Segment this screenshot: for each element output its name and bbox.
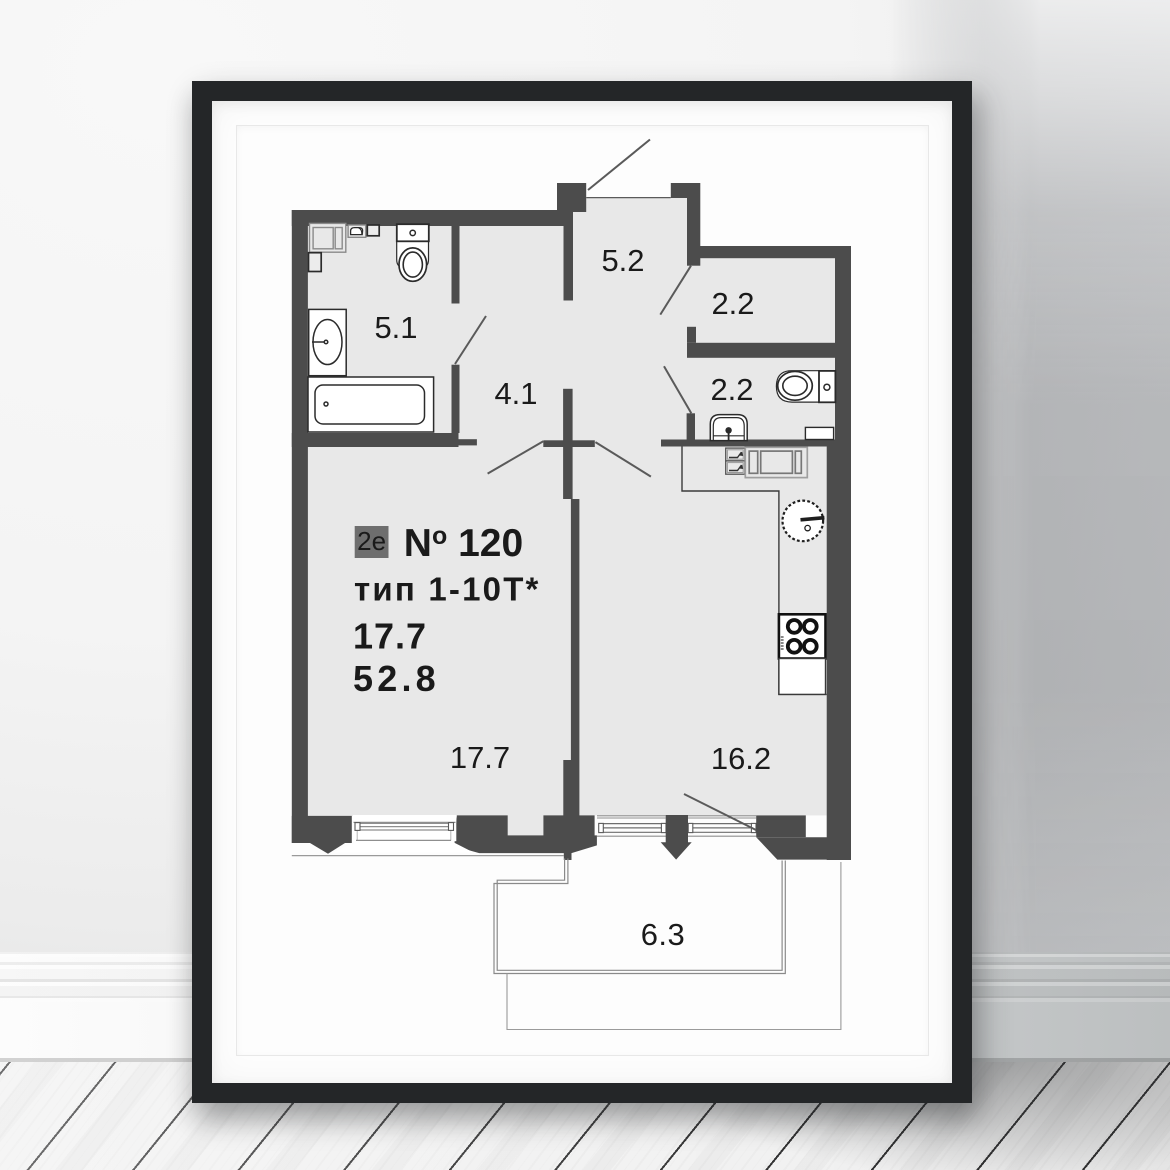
svg-text:2.2: 2.2 [710, 372, 753, 407]
svg-text:No 120: No 120 [404, 522, 523, 565]
svg-text:2е: 2е [357, 526, 386, 556]
svg-text:16.2: 16.2 [711, 741, 771, 776]
svg-text:5.2: 5.2 [601, 243, 644, 278]
svg-text:2.2: 2.2 [711, 286, 754, 321]
svg-text:6.3: 6.3 [641, 917, 686, 952]
svg-text:52.8: 52.8 [353, 658, 440, 699]
svg-text:17.7: 17.7 [353, 616, 427, 657]
svg-text:4.1: 4.1 [494, 376, 537, 411]
svg-text:17.7: 17.7 [450, 740, 510, 775]
svg-text:тип 1-10Т*: тип 1-10Т* [354, 571, 541, 608]
svg-text:5.1: 5.1 [374, 310, 417, 345]
